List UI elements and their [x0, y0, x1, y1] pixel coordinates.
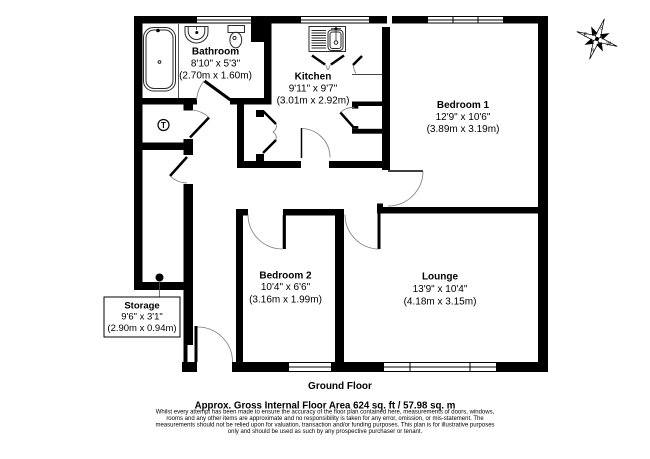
svg-text:Lounge: Lounge — [422, 272, 459, 283]
svg-text:W: W — [606, 41, 611, 47]
svg-text:only and should be used as suc: only and should be used as such by any p… — [228, 429, 423, 435]
svg-text:(3.01m x 2.92m): (3.01m x 2.92m) — [277, 96, 350, 107]
svg-text:Bathroom: Bathroom — [192, 47, 239, 58]
svg-text:8'10" x 5'3": 8'10" x 5'3" — [191, 59, 241, 70]
svg-text:Bedroom 2: Bedroom 2 — [259, 271, 312, 282]
svg-text:Kitchen: Kitchen — [295, 72, 332, 83]
svg-text:N: N — [591, 48, 595, 54]
svg-text:9'6" x 3'1": 9'6" x 3'1" — [121, 312, 163, 323]
svg-text:13'9" x 10'4": 13'9" x 10'4" — [413, 284, 468, 295]
svg-text:(2.90m x 0.94m): (2.90m x 0.94m) — [107, 323, 176, 334]
svg-text:(4.18m x 3.15m): (4.18m x 3.15m) — [404, 297, 477, 308]
svg-text:Storage: Storage — [124, 301, 159, 312]
svg-text:(2.70m x 1.60m): (2.70m x 1.60m) — [179, 71, 252, 82]
svg-text:measurements should not be rel: measurements should not be relied upon f… — [155, 422, 494, 428]
svg-text:(3.16m x 1.99m): (3.16m x 1.99m) — [249, 295, 322, 306]
svg-text:(3.89m x 3.19m): (3.89m x 3.19m) — [427, 124, 500, 135]
svg-text:12'9" x 10'6": 12'9" x 10'6" — [436, 112, 491, 123]
svg-text:T: T — [161, 121, 166, 130]
svg-text:10'4" x 6'6": 10'4" x 6'6" — [261, 282, 311, 293]
svg-text:9'11" x 9'7": 9'11" x 9'7" — [289, 84, 338, 95]
svg-text:Ground Floor: Ground Floor — [308, 381, 372, 392]
svg-text:Whilst every attempt has been: Whilst every attempt has been made to en… — [156, 410, 495, 416]
svg-text:rooms and any other items are: rooms and any other items are approximat… — [166, 416, 484, 422]
svg-text:Bedroom 1: Bedroom 1 — [437, 100, 490, 111]
